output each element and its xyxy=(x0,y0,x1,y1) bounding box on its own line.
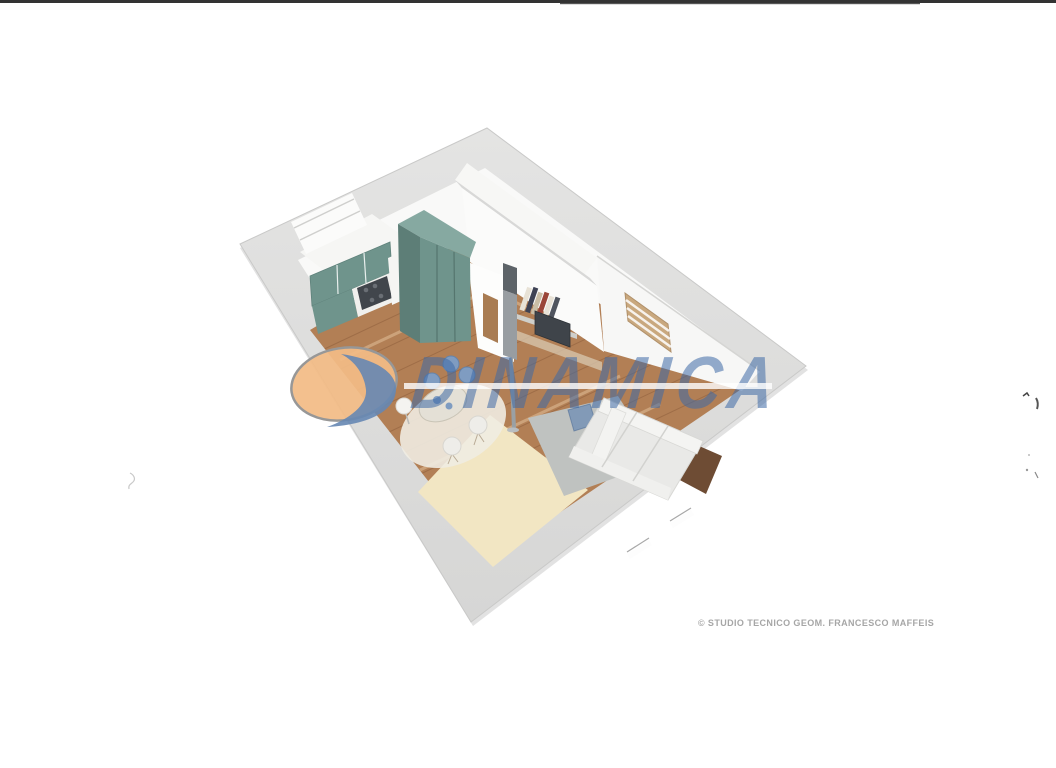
window-opening-1 xyxy=(627,538,652,559)
scan-specks-right xyxy=(1023,393,1038,478)
scan-squiggle-left xyxy=(129,473,135,489)
floor-lamp-base xyxy=(507,428,519,433)
scanned-page: DINAMICA © STUDIO TECNICO GEOM. FRANCESC… xyxy=(0,0,1056,768)
credit-text: © STUDIO TECNICO GEOM. FRANCESCO MAFFEIS xyxy=(698,618,934,628)
scan-top-edge-artifact xyxy=(0,0,1056,3)
window-opening-2 xyxy=(670,508,694,528)
watermark-stripe xyxy=(404,383,772,389)
wardrobe-side xyxy=(398,224,420,343)
hall-door xyxy=(483,293,498,343)
wall-edge-column-top xyxy=(503,263,517,295)
scan-top-edge-artifact-2 xyxy=(560,3,920,4)
